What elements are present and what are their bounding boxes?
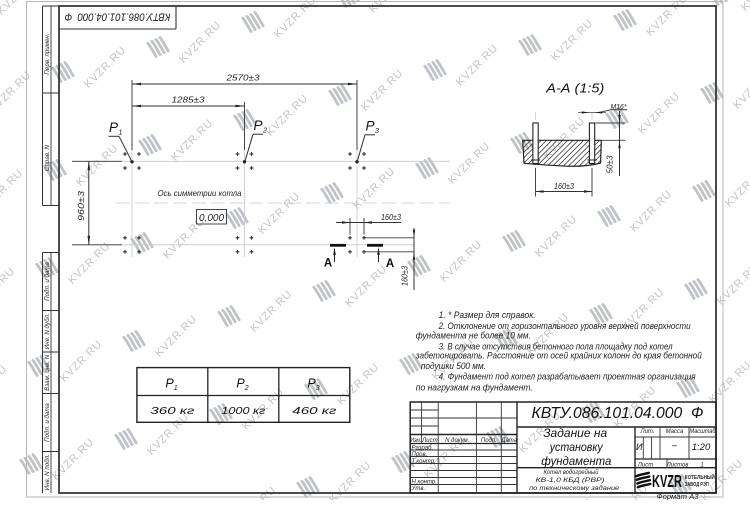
svg-text:Пров.: Пров. bbox=[412, 452, 428, 458]
svg-text:–: – bbox=[671, 440, 678, 450]
svg-text:Котел водогрейный: Котел водогрейный bbox=[544, 468, 599, 476]
svg-text:Масштаб: Масштаб bbox=[690, 429, 717, 435]
svg-text:Дата: Дата bbox=[500, 438, 517, 444]
svg-text:1000 кг: 1000 кг bbox=[221, 405, 265, 417]
svg-text:по техническому задание: по техническому задание bbox=[529, 484, 620, 492]
svg-text:КВТУ.086.101.04.000 Ф: КВТУ.086.101.04.000 Ф bbox=[532, 405, 704, 422]
svg-text:P: P bbox=[109, 120, 118, 135]
svg-text:2: 2 bbox=[262, 128, 267, 135]
svg-text:Лит.: Лит. bbox=[639, 429, 654, 435]
svg-text:2. Отклонение от горизонтал: 2. Отклонение от горизонтального уровня … bbox=[438, 321, 691, 331]
svg-text:Лист: Лист bbox=[637, 462, 653, 468]
svg-text:1. * Размер для справок.: 1. * Размер для справок. bbox=[439, 310, 536, 320]
svg-text:0,000: 0,000 bbox=[199, 212, 224, 224]
svg-text:Н.контр.: Н.контр. bbox=[412, 480, 437, 486]
svg-text:50±3: 50±3 bbox=[605, 155, 615, 173]
svg-text:4. Фундамент под котел разраб: 4. Фундамент под котел разрабатывает про… bbox=[439, 372, 696, 382]
svg-text:Взам. инв. N: Взам. инв. N bbox=[44, 354, 51, 391]
svg-text:Задание на: Задание на bbox=[543, 426, 607, 440]
svg-text:Лист: Лист bbox=[421, 438, 437, 444]
svg-text:Подп. и дата: Подп. и дата bbox=[44, 262, 51, 301]
svg-text:Ось симметрии котла: Ось симметрии котла bbox=[158, 188, 242, 198]
svg-text:1:20: 1:20 bbox=[692, 442, 711, 453]
svg-text:подушки 500 мм.: подушки 500 мм. bbox=[421, 361, 486, 371]
svg-text:460 кг: 460 кг bbox=[292, 405, 336, 417]
svg-text:КВ-1,0 КБД (РВР): КВ-1,0 КБД (РВР) bbox=[536, 477, 605, 484]
svg-text:А: А bbox=[324, 258, 332, 270]
svg-text:установку: установку bbox=[549, 440, 604, 454]
svg-text:по нагрузкам на фундамент.: по нагрузкам на фундамент. bbox=[416, 383, 533, 393]
svg-text:фундамента: фундамента bbox=[541, 454, 611, 468]
svg-text:А-А (1:5): А-А (1:5) bbox=[545, 81, 604, 96]
svg-text:960±3: 960±3 bbox=[76, 191, 86, 221]
svg-text:3: 3 bbox=[375, 128, 379, 135]
svg-text:160±3: 160±3 bbox=[381, 213, 401, 222]
svg-text:M16*: M16* bbox=[611, 102, 628, 111]
svg-text:160±3: 160±3 bbox=[401, 266, 410, 286]
svg-text:КОТЕЛЬНЫЙ: КОТЕЛЬНЫЙ bbox=[685, 473, 715, 481]
svg-text:N докум.: N докум. bbox=[445, 438, 469, 444]
svg-text:Инв. N подл.: Инв. N подл. bbox=[44, 454, 51, 490]
svg-text:Инв. N дубл.: Инв. N дубл. bbox=[44, 313, 51, 349]
svg-text:ЗАВОД РЭП: ЗАВОД РЭП bbox=[685, 482, 709, 488]
svg-text:360 кг: 360 кг bbox=[150, 405, 194, 417]
svg-text:1285±3: 1285±3 bbox=[172, 95, 205, 105]
svg-text:Справ. N: Справ. N bbox=[44, 145, 51, 171]
svg-text:КВТУ.086.101.04.000 Ф: КВТУ.086.101.04.000 Ф bbox=[64, 11, 170, 23]
svg-text:Т.контр.: Т.контр. bbox=[412, 459, 436, 465]
svg-text:P: P bbox=[254, 118, 263, 133]
svg-text:Разраб.: Разраб. bbox=[412, 445, 434, 451]
svg-text:2570±3: 2570±3 bbox=[225, 73, 259, 83]
svg-text:Формат А3: Формат А3 bbox=[657, 494, 699, 500]
svg-text:KVZR: KVZR bbox=[652, 471, 682, 491]
svg-text:Изм.: Изм. bbox=[410, 438, 421, 444]
svg-text:1: 1 bbox=[119, 130, 123, 137]
svg-text:Подп. и дата: Подп. и дата bbox=[44, 403, 51, 442]
svg-text:Листов: Листов bbox=[666, 462, 689, 468]
svg-text:Масса: Масса bbox=[666, 429, 684, 435]
svg-text:фундамента не более 10 мм.: фундамента не более 10 мм. bbox=[416, 331, 531, 341]
svg-text:И: И bbox=[636, 442, 643, 452]
svg-text:Перв. примен.: Перв. примен. bbox=[44, 33, 51, 74]
svg-text:160±3: 160±3 bbox=[554, 181, 574, 191]
svg-text:Утв.: Утв. bbox=[411, 486, 426, 492]
svg-text:А: А bbox=[386, 258, 394, 270]
svg-text:1: 1 bbox=[700, 462, 703, 468]
svg-text:Подп.: Подп. bbox=[481, 438, 497, 444]
svg-text:P: P bbox=[366, 119, 375, 134]
svg-text:забетонировать. Расстояние от: забетонировать. Расстояние от осей крайн… bbox=[415, 351, 702, 361]
